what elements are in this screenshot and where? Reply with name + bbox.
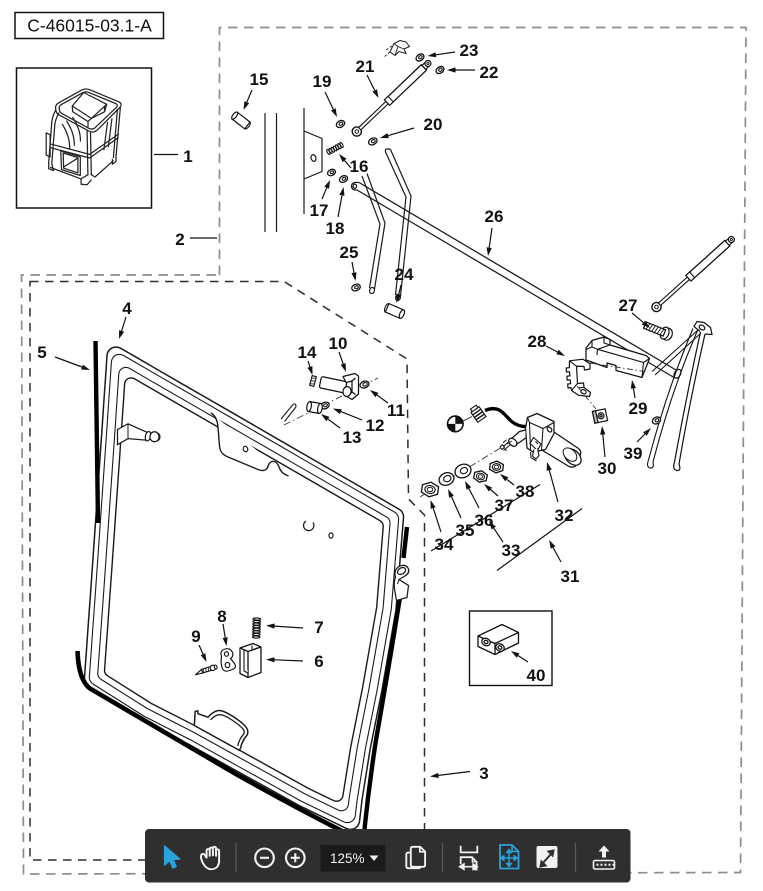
svg-text:125%: 125% (330, 851, 365, 866)
svg-text:1: 1 (183, 147, 192, 166)
svg-text:22: 22 (480, 63, 499, 82)
svg-text:39: 39 (624, 444, 643, 463)
svg-text:21: 21 (356, 57, 375, 76)
svg-text:7: 7 (314, 618, 323, 637)
svg-text:13: 13 (343, 428, 362, 447)
svg-text:26: 26 (485, 207, 504, 226)
svg-text:2: 2 (175, 230, 184, 249)
svg-text:24: 24 (395, 265, 414, 284)
svg-text:C-46015-03.1-A: C-46015-03.1-A (27, 16, 152, 36)
svg-text:29: 29 (629, 399, 648, 418)
svg-text:9: 9 (191, 627, 200, 646)
svg-text:3: 3 (479, 764, 488, 783)
svg-text:11: 11 (387, 401, 405, 420)
svg-text:18: 18 (326, 219, 345, 238)
svg-text:37: 37 (495, 496, 514, 515)
svg-text:23: 23 (460, 41, 479, 60)
svg-text:12: 12 (366, 416, 385, 435)
svg-text:31: 31 (561, 567, 580, 586)
svg-text:27: 27 (619, 296, 638, 315)
svg-text:34: 34 (435, 535, 454, 554)
svg-text:20: 20 (424, 115, 443, 134)
svg-text:8: 8 (217, 607, 226, 626)
svg-text:10: 10 (329, 334, 348, 353)
svg-text:4: 4 (122, 299, 132, 318)
svg-text:5: 5 (37, 343, 46, 362)
svg-text:19: 19 (313, 72, 332, 91)
svg-text:17: 17 (310, 201, 329, 220)
svg-text:14: 14 (298, 343, 317, 362)
svg-text:6: 6 (314, 652, 323, 671)
svg-text:36: 36 (475, 511, 494, 530)
svg-text:33: 33 (502, 541, 521, 560)
svg-text:30: 30 (598, 459, 617, 478)
svg-text:28: 28 (528, 332, 547, 351)
svg-text:15: 15 (250, 70, 269, 89)
svg-text:16: 16 (350, 157, 369, 176)
svg-text:40: 40 (527, 666, 546, 685)
svg-text:25: 25 (340, 243, 359, 262)
